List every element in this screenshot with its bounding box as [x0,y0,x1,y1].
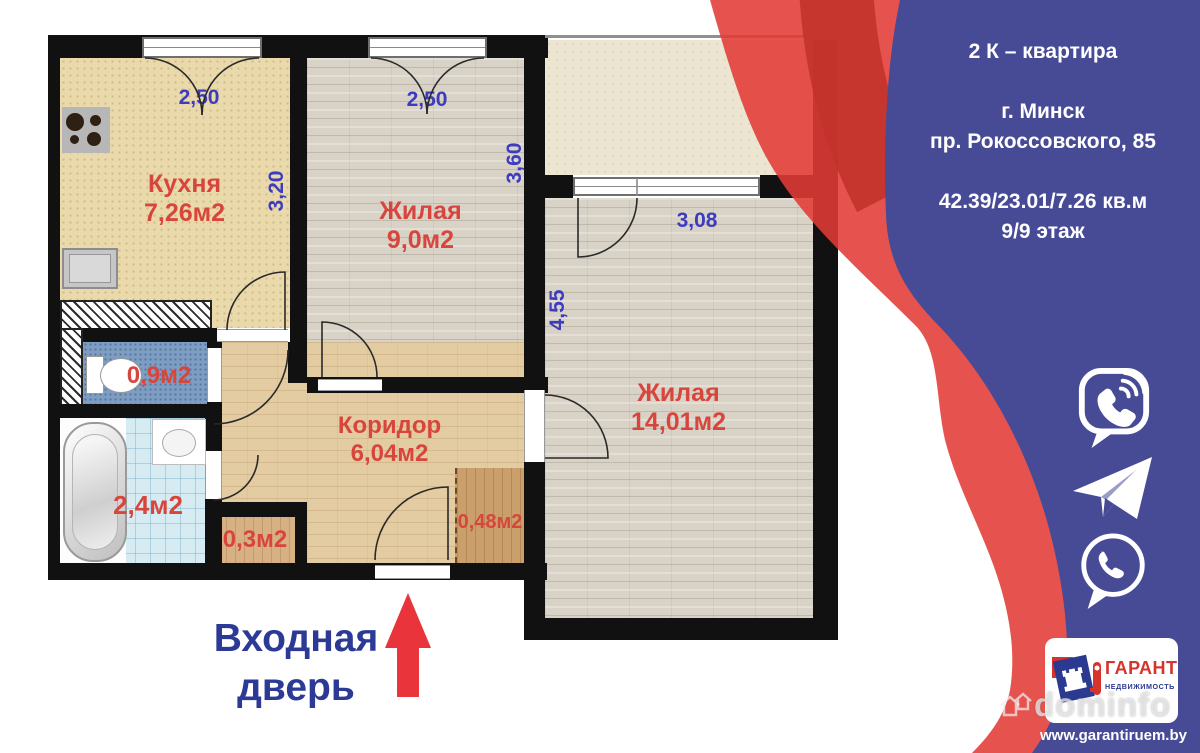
panel-title: 2 К – квартира [886,40,1200,64]
watermark: dominfo [998,686,1171,724]
watermark-text: dominfo [1034,686,1171,724]
agency-logo-title: ГАРАНТ [1105,658,1178,679]
house-icon [998,691,1032,719]
viber-icon [1075,366,1153,452]
flyer: Кухня 7,26м2 Жилая 9,0м2 Жилая 14,01м2 К… [0,0,1200,753]
panel-floor: 9/9 этаж [886,220,1200,244]
panel-city: г. Минск [886,100,1200,124]
telegram-icon [1070,452,1156,522]
whatsapp-icon [1074,528,1152,614]
panel-metrics: 42.39/23.01/7.26 кв.м [886,190,1200,214]
website-url: www.garantiruem.by [1040,727,1185,744]
panel-address: пр. Рокоссовского, 85 [886,130,1200,154]
